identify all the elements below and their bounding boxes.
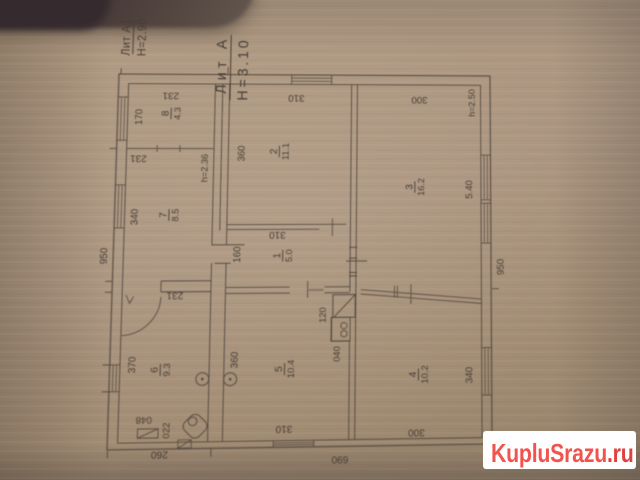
svg-text:370: 370 [127,356,139,373]
svg-text:690: 690 [331,453,348,464]
svg-text:5.0: 5.0 [284,249,295,262]
svg-text:6: 6 [149,367,161,373]
svg-text:Н=3.10: Н=3.10 [235,37,253,100]
svg-text:Н=2.90: Н=2.90 [136,18,150,56]
svg-text:950: 950 [99,247,111,264]
svg-text:9.3: 9.3 [162,363,173,376]
svg-text:8: 8 [160,111,172,117]
svg-text:Лит А: Лит А [213,35,231,93]
svg-text:h=2.36: h=2.36 [199,154,210,182]
svg-text:231: 231 [130,153,147,163]
svg-text:8.5: 8.5 [170,209,181,222]
svg-text:3: 3 [404,184,416,190]
svg-text:11.1: 11.1 [281,143,292,160]
svg-text:300: 300 [411,94,427,104]
svg-text:360: 360 [229,351,240,368]
svg-text:040: 040 [332,346,343,362]
svg-text:10.4: 10.4 [286,359,297,378]
svg-text:310: 310 [288,92,305,102]
svg-text:2: 2 [268,149,280,155]
svg-text:231: 231 [162,90,179,100]
svg-text:h=2.50: h=2.50 [467,89,477,117]
svg-text:4.3: 4.3 [173,107,184,120]
svg-text:310: 310 [269,229,286,240]
svg-text:300: 300 [408,426,425,437]
svg-text:340: 340 [465,366,476,383]
svg-text:16.2: 16.2 [416,178,427,196]
svg-text:310: 310 [275,423,292,434]
svg-text:5: 5 [273,366,285,372]
svg-text:10.2: 10.2 [420,365,431,383]
svg-text:260: 260 [150,448,168,459]
svg-text:7: 7 [157,212,169,218]
svg-text:022: 022 [161,422,173,438]
svg-text:120: 120 [318,307,329,323]
svg-text:1: 1 [271,253,283,259]
svg-text:360: 360 [237,145,248,161]
svg-text:340: 340 [129,208,140,225]
svg-text:160: 160 [232,246,243,263]
svg-text:4: 4 [407,372,419,378]
svg-text:Лит А1: Лит А1 [120,18,134,55]
svg-text:048: 048 [136,414,153,425]
svg-text:170: 170 [134,109,145,125]
svg-text:231: 231 [166,290,183,301]
svg-text:950: 950 [496,259,507,276]
svg-text:5.40: 5.40 [464,180,475,199]
